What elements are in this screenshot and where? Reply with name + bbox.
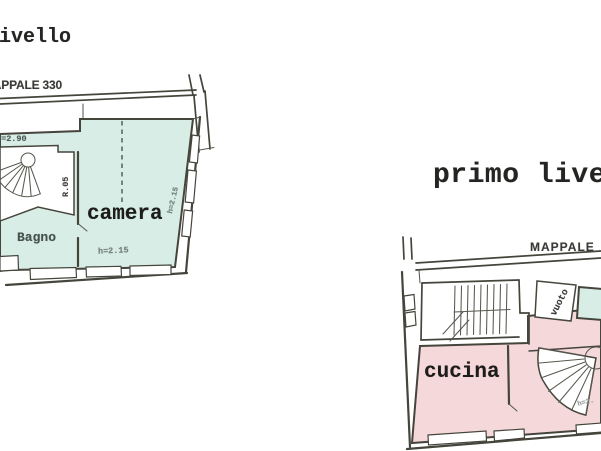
- window: [576, 423, 601, 434]
- window: [30, 268, 77, 280]
- cucina-room-label: cucina: [424, 362, 500, 383]
- right-floorplan: [402, 237, 601, 449]
- floorplan-sheet: livello MAPPALE 330 h=2.90 R.05 camera B…: [0, 0, 601, 451]
- wall-pier: [404, 295, 415, 312]
- wall-pier: [405, 312, 416, 328]
- straight-staircase: [443, 284, 510, 341]
- left-plan-title: livello: [0, 28, 71, 48]
- left-parcel-label: MAPPALE 330: [0, 79, 62, 91]
- left-height-note: h=2.90: [0, 135, 27, 144]
- right-plan-title: primo livello: [433, 162, 601, 190]
- right-parcel-label: MAPPALE: [530, 241, 595, 253]
- wall-pier: [0, 256, 19, 272]
- bagno-room-label: Bagno: [17, 231, 56, 244]
- window: [130, 265, 171, 276]
- right-stairwell: [421, 280, 529, 344]
- right-teal-patch: [577, 287, 601, 320]
- camera-room-label: camera: [87, 204, 163, 225]
- left-ceiling-note: h=2.15: [98, 246, 129, 256]
- window: [182, 210, 193, 237]
- left-stair-note: R.05: [62, 177, 71, 197]
- window: [86, 266, 122, 277]
